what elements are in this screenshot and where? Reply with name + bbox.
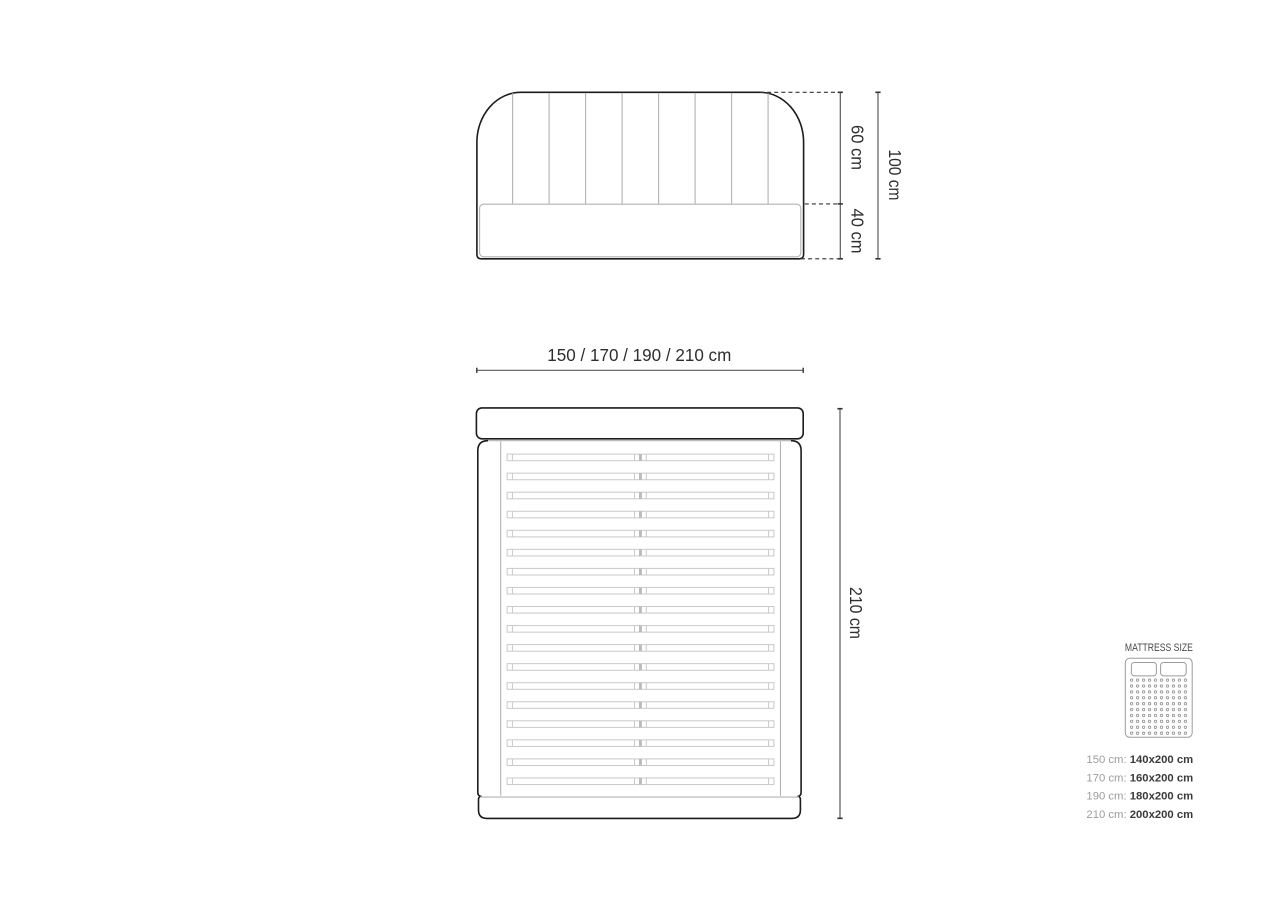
svg-text:150 / 170 / 190 / 210 cm: 150 / 170 / 190 / 210 cm: [547, 345, 731, 365]
svg-text:170 cm: 160x200 cm: 170 cm: 160x200 cm: [1086, 772, 1193, 784]
svg-text:60 cm: 60 cm: [847, 125, 867, 170]
svg-text:210 cm: 200x200 cm: 210 cm: 200x200 cm: [1086, 809, 1193, 821]
svg-text:MATTRESS SIZE: MATTRESS SIZE: [1125, 642, 1193, 654]
svg-text:210 cm: 210 cm: [846, 587, 866, 639]
svg-text:190 cm: 180x200 cm: 190 cm: 180x200 cm: [1086, 791, 1193, 803]
svg-text:40 cm: 40 cm: [847, 209, 867, 254]
svg-text:150 cm: 140x200 cm: 150 cm: 140x200 cm: [1086, 754, 1193, 766]
svg-text:100 cm: 100 cm: [885, 150, 905, 201]
